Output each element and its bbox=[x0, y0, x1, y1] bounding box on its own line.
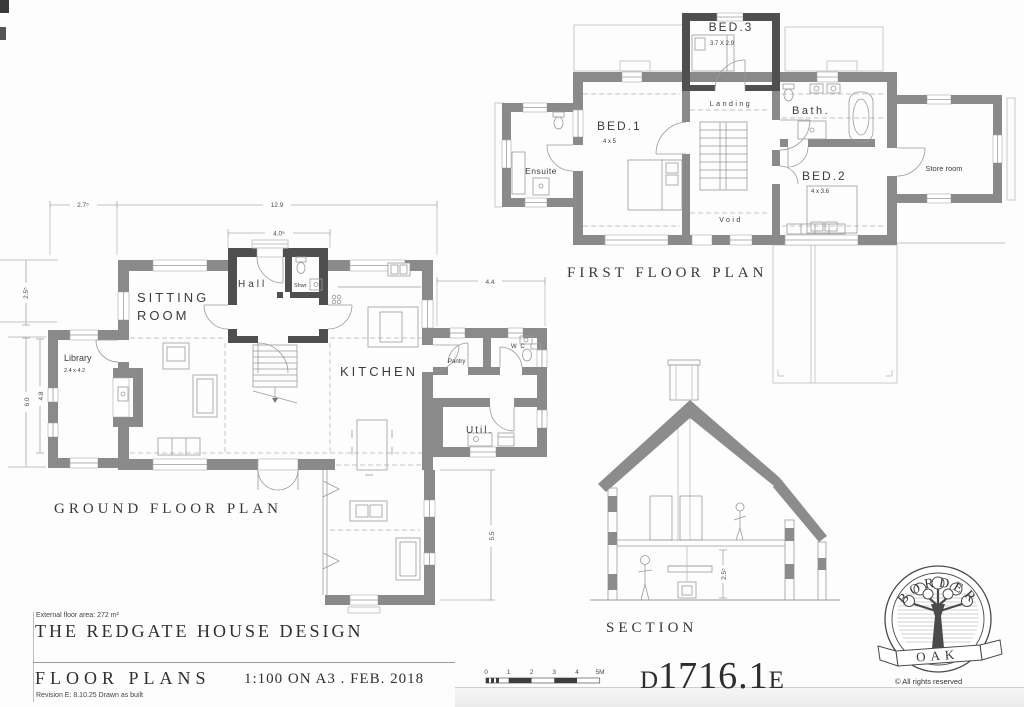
section-height-dim: 2.5⁵ bbox=[721, 568, 728, 580]
section-drawing: 2.5⁵ SECTION bbox=[590, 360, 840, 650]
dim-2-55: 2.5⁵ bbox=[23, 287, 30, 299]
scale-tick-3: 3 bbox=[552, 669, 556, 676]
wc-label: W C bbox=[511, 344, 526, 350]
drawing-name: FLOOR PLANS bbox=[35, 668, 211, 689]
drawing-number-main: 1716.1 bbox=[658, 654, 769, 698]
dim-2-75: 2.7⁵ bbox=[77, 202, 89, 209]
hall-label: Hall bbox=[238, 279, 267, 290]
section-roof bbox=[598, 400, 827, 542]
sitting-room-label-1: SITTING bbox=[137, 290, 209, 305]
dim-4-4: 4.4 bbox=[485, 279, 494, 286]
pantry-wc-util-walls bbox=[433, 328, 547, 457]
drawing-number-suffix: E bbox=[769, 667, 784, 695]
drawing-sheet: BED.3 3.7 X 2.9 BED.1 4 x 5 Landing Bath… bbox=[0, 0, 1024, 707]
bed1-label: BED.1 bbox=[597, 119, 642, 133]
store-room-label: Store room bbox=[925, 164, 962, 173]
kitchen-label: KITCHEN bbox=[340, 364, 418, 379]
scale-bar: 0 1 2 3 4 5M bbox=[478, 664, 618, 690]
first-floor-stairs bbox=[700, 122, 747, 190]
section-title: SECTION bbox=[606, 620, 697, 636]
first-floor-plan: BED.3 3.7 X 2.9 BED.1 4 x 5 Landing Bath… bbox=[495, 0, 1024, 400]
void-label: Void bbox=[719, 217, 743, 224]
bed2-dims: 4 x 3.6 bbox=[811, 189, 830, 195]
landing-label: Landing bbox=[710, 101, 752, 108]
sheet-title: THE REDGATE HOUSE DESIGN bbox=[35, 621, 363, 642]
bath-label: Bath. bbox=[792, 105, 830, 117]
logo-rights: © All rights reserved bbox=[895, 677, 962, 686]
dim-4-05: 4.0⁵ bbox=[273, 231, 285, 238]
scale-tick-2: 2 bbox=[530, 669, 534, 676]
library-dims: 2.4 x 4.2 bbox=[64, 368, 85, 374]
bed3-label: BED.3 bbox=[709, 20, 754, 34]
section-dimension: 2.5⁵ bbox=[719, 550, 728, 598]
ground-floor-stairs bbox=[253, 345, 297, 403]
margin-line bbox=[33, 612, 34, 702]
pantry-label: Pantry bbox=[448, 359, 465, 365]
section-chimney bbox=[668, 360, 700, 540]
border-oak-logo: BORDER OAK © All rights reserved bbox=[862, 556, 1014, 706]
kitchen-wing-walls bbox=[323, 465, 435, 613]
scale-tick-1: 1 bbox=[507, 669, 511, 676]
ground-floor-dashed-lines bbox=[130, 338, 422, 453]
section-structure bbox=[590, 488, 840, 600]
scale-tick-5: 5M bbox=[595, 669, 604, 676]
scale-tick-0: 0 bbox=[484, 669, 488, 676]
dim-6-0: 6.0 bbox=[24, 397, 31, 406]
revision-note: Revision E: 8.10.25 Drawn as built bbox=[36, 692, 143, 699]
dim-5-5: 5.5 bbox=[489, 531, 496, 540]
ground-floor-plan: 2.7⁵ 12.9 4.0⁵ 2.5⁵ 6.0 4.8 4.4 5.5 bbox=[0, 195, 560, 625]
first-floor-plan-title: FIRST FLOOR PLAN bbox=[567, 265, 767, 281]
bed2-label: BED.2 bbox=[802, 169, 847, 183]
drawing-number-prefix: D bbox=[640, 667, 658, 695]
store-room-walls bbox=[887, 95, 1002, 203]
dim-12-9: 12.9 bbox=[271, 202, 284, 209]
title-divider bbox=[33, 662, 455, 663]
ensuite-label: Ensuite bbox=[525, 166, 557, 176]
scan-mark-top bbox=[0, 0, 9, 13]
bed1-dims: 4 x 5 bbox=[603, 139, 617, 145]
section-figures bbox=[638, 503, 746, 600]
scale-tick-4: 4 bbox=[575, 669, 579, 676]
shwr-label: Shwr. bbox=[294, 283, 308, 289]
hall-walls bbox=[228, 240, 328, 343]
sitting-room-label-2: ROOM bbox=[137, 308, 189, 323]
scale-note: 1:100 ON A3 . FEB. 2018 bbox=[244, 671, 424, 688]
ensuite-walls bbox=[502, 103, 573, 207]
ground-floor-plan-title: GROUND FLOOR PLAN bbox=[54, 501, 282, 517]
dim-4-8: 4.8 bbox=[38, 391, 45, 400]
bed3-dims: 3.7 X 2.9 bbox=[710, 41, 735, 47]
scan-mark-left bbox=[0, 27, 6, 40]
area-note: External floor area: 272 m² bbox=[36, 612, 119, 619]
util-label: Util. bbox=[466, 425, 493, 436]
drawing-number: D1716.1E bbox=[640, 654, 784, 698]
library-label: Library bbox=[64, 353, 92, 363]
logo-banner-text: OAK bbox=[916, 647, 960, 665]
